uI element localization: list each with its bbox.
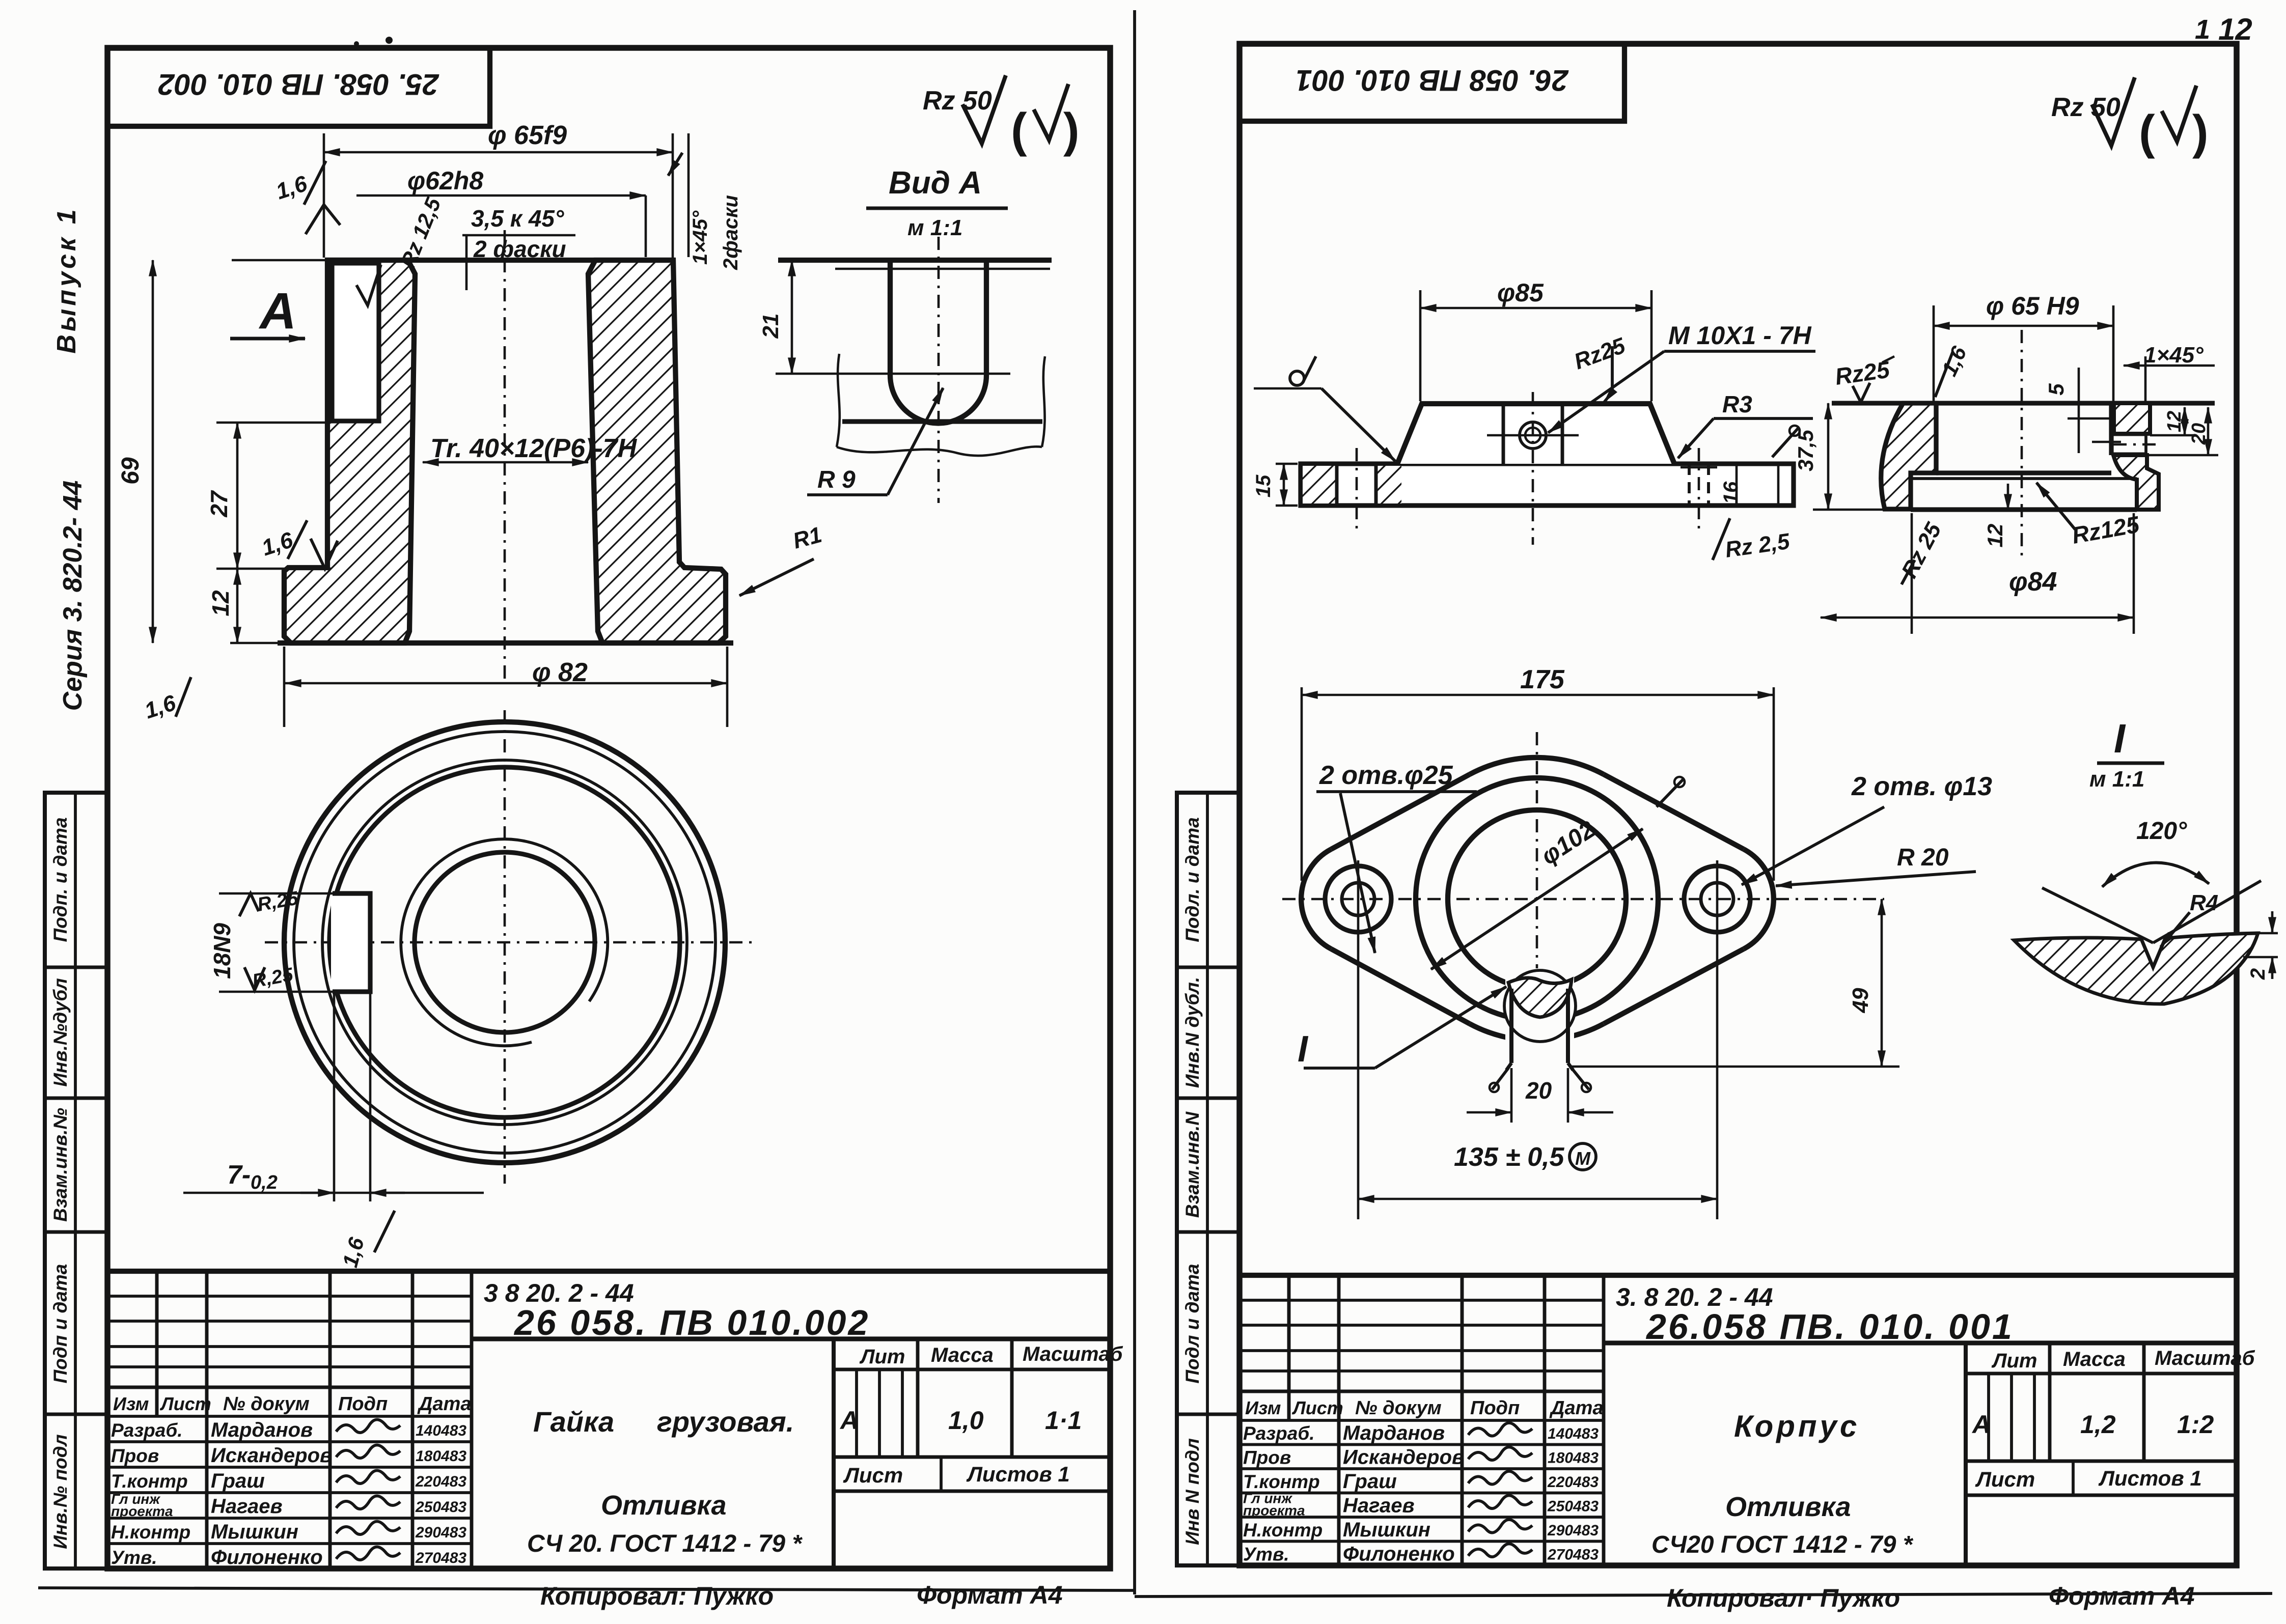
svg-text:): ) (2192, 105, 2209, 159)
svg-text:Масштаб: Масштаб (2155, 1347, 2255, 1369)
svg-text:№ докум: № докум (223, 1393, 310, 1415)
svg-text:12: 12 (207, 590, 234, 617)
svg-text:Лист: Лист (843, 1463, 903, 1487)
svg-text:Т.контр: Т.контр (1243, 1471, 1320, 1492)
svg-text:φ 65f9: φ 65f9 (488, 121, 567, 150)
svg-text:20: 20 (2188, 423, 2210, 445)
svg-text:R3: R3 (1722, 391, 1752, 417)
svg-text:А: А (1971, 1410, 1991, 1439)
svg-text:Подп: Подп (338, 1393, 388, 1415)
svg-text:Дата: Дата (1549, 1397, 1604, 1419)
svg-text:3,5 к 45°: 3,5 к 45° (471, 205, 564, 232)
svg-text:20: 20 (1525, 1077, 1552, 1104)
svg-text:А: А (258, 283, 296, 340)
svg-text:37,5: 37,5 (1794, 429, 1817, 471)
svg-text:Tr. 40×12(Р6)-7Н: Tr. 40×12(Р6)-7Н (430, 434, 638, 463)
svg-text:Марданов: Марданов (211, 1419, 313, 1441)
svg-text:0,2: 0,2 (251, 1172, 278, 1193)
svg-text:21: 21 (758, 314, 783, 339)
svg-text:А: А (839, 1406, 859, 1435)
svg-text:φ 65 Н9: φ 65 Н9 (1986, 292, 2079, 320)
svg-text:Подп и дата: Подп и дата (50, 1264, 71, 1384)
svg-text:φ85: φ85 (1497, 278, 1544, 307)
svg-text:Подп. и дата: Подп. и дата (50, 817, 71, 942)
svg-text:26 058. ПВ 010.002: 26 058. ПВ 010.002 (513, 1303, 870, 1342)
svg-text:270483: 270483 (1547, 1547, 1599, 1563)
svg-text:Граш: Граш (211, 1470, 265, 1492)
svg-text:26.058 ПВ. 010. 001: 26.058 ПВ. 010. 001 (1645, 1307, 2014, 1347)
svg-text:Корпус: Корпус (1734, 1409, 1860, 1443)
svg-text:1×45°: 1×45° (689, 210, 711, 265)
svg-text:Филоненко: Филоненко (211, 1546, 323, 1569)
svg-text:Пров: Пров (111, 1445, 159, 1466)
svg-text:180483: 180483 (416, 1448, 466, 1465)
svg-text:Н.контр: Н.контр (111, 1522, 190, 1543)
svg-text:140483: 140483 (416, 1422, 466, 1439)
svg-text:Пров: Пров (1243, 1447, 1291, 1468)
svg-text:2 отв.φ25: 2 отв.φ25 (1319, 761, 1453, 790)
svg-text:Листов 1: Листов 1 (2098, 1466, 2202, 1490)
svg-text:Н.контр: Н.контр (1243, 1520, 1323, 1541)
svg-text:φ84: φ84 (2009, 567, 2057, 597)
svg-text:R 20: R 20 (1897, 844, 1949, 871)
svg-text:Лист: Лист (1291, 1397, 1343, 1418)
svg-text:Копировал: Пужко: Копировал: Пужко (540, 1582, 774, 1610)
svg-text:I: I (2114, 716, 2126, 761)
svg-text:Лит: Лит (859, 1346, 905, 1368)
svg-text:Разраб.: Разраб. (1243, 1423, 1315, 1444)
svg-text:2фаски: 2фаски (720, 195, 742, 270)
svg-text:270483: 270483 (415, 1550, 466, 1566)
svg-text:26. 058 ПВ 010. 001: 26. 058 ПВ 010. 001 (1296, 64, 1568, 97)
svg-text:120°: 120° (2136, 818, 2187, 845)
svg-text:2 отв. φ13: 2 отв. φ13 (1851, 772, 1992, 801)
svg-text:Утв.: Утв. (1243, 1544, 1289, 1565)
svg-text:Искандеров: Искандеров (211, 1444, 332, 1467)
svg-text:Взам.инв.N: Взам.инв.N (1182, 1111, 1203, 1218)
svg-text:27: 27 (206, 490, 232, 518)
svg-text:Мышкин: Мышкин (211, 1521, 298, 1543)
svg-text:Масштаб: Масштаб (1023, 1343, 1123, 1365)
svg-text:Масса: Масса (931, 1344, 994, 1366)
svg-text:φ62h8: φ62h8 (407, 166, 483, 195)
svg-text:15: 15 (1252, 474, 1275, 497)
svg-text:290483: 290483 (1547, 1522, 1599, 1539)
svg-text:Нагаев: Нагаев (211, 1495, 283, 1518)
svg-text:12: 12 (2164, 411, 2185, 432)
svg-text:69: 69 (117, 457, 144, 485)
svg-text:Взам.инв.№: Взам.инв.№ (50, 1108, 71, 1222)
svg-text:№ докум: № докум (1355, 1397, 1442, 1419)
svg-text:290483: 290483 (415, 1524, 466, 1541)
svg-text:I: I (1298, 1029, 1309, 1070)
svg-text:1,0: 1,0 (948, 1406, 984, 1435)
svg-text:25. 058. ПВ 010. 002: 25. 058. ПВ 010. 002 (158, 68, 439, 101)
svg-text:Нагаев: Нагаев (1343, 1495, 1415, 1517)
svg-text:Изм: Изм (1245, 1397, 1281, 1418)
svg-text:Инв.№ подл: Инв.№ подл (50, 1434, 71, 1549)
svg-text:(: ( (2139, 105, 2155, 159)
svg-text:2: 2 (2247, 968, 2269, 980)
svg-text:2 фаски: 2 фаски (473, 236, 566, 262)
svg-text:СЧ 20. ГОСТ 1412 - 79 *: СЧ 20. ГОСТ 1412 - 79 * (527, 1530, 803, 1557)
svg-text:Листов 1: Листов 1 (966, 1462, 1070, 1486)
svg-text:м 1:1: м 1:1 (907, 215, 962, 240)
svg-text:Граш: Граш (1343, 1470, 1397, 1493)
svg-text:12: 12 (2218, 12, 2252, 46)
svg-text:Мышкин: Мышкин (1343, 1519, 1430, 1541)
svg-text:): ) (1063, 103, 1080, 157)
svg-text:(: ( (1011, 103, 1027, 157)
svg-text:Подп: Подп (1470, 1397, 1520, 1419)
svg-text:Филоненко: Филоненко (1343, 1543, 1455, 1565)
svg-text:18N9: 18N9 (209, 923, 235, 979)
svg-text:Марданов: Марданов (1343, 1422, 1445, 1444)
svg-text:Т.контр: Т.контр (111, 1471, 188, 1492)
svg-text:Вид А: Вид А (889, 165, 982, 201)
svg-text:R4: R4 (2190, 890, 2218, 915)
svg-text:Лист: Лист (1975, 1467, 2035, 1491)
svg-text:140483: 140483 (1548, 1425, 1599, 1442)
svg-text:12: 12 (1983, 524, 2007, 548)
svg-text:М 10X1 - 7Н: М 10X1 - 7Н (1668, 321, 1812, 350)
svg-text:175: 175 (1520, 665, 1565, 694)
svg-text:Отливка: Отливка (601, 1490, 727, 1521)
svg-text:7-: 7- (227, 1160, 251, 1190)
svg-text:Разраб.: Разраб. (111, 1420, 183, 1441)
svg-text:м 1:1: м 1:1 (2089, 767, 2144, 792)
svg-text:Подл. и дата: Подл. и дата (1182, 817, 1203, 942)
svg-text:Rz 50: Rz 50 (923, 86, 992, 116)
svg-text:Инв.№дубл: Инв.№дубл (50, 978, 71, 1086)
svg-text:Изм: Изм (113, 1393, 149, 1414)
svg-text:Подл и дата: Подл и дата (1182, 1264, 1203, 1383)
svg-text:Формат А4: Формат А4 (2049, 1582, 2195, 1610)
svg-text:Серия 3. 820.2- 44: Серия 3. 820.2- 44 (58, 481, 88, 711)
svg-text:Утв.: Утв. (111, 1547, 157, 1568)
svg-text:180483: 180483 (1548, 1450, 1599, 1467)
svg-text:Выпуск 1: Выпуск 1 (52, 206, 81, 353)
svg-text:грузовая.: грузовая. (657, 1406, 794, 1438)
svg-text:Копировал· Пужко: Копировал· Пужко (1667, 1584, 1900, 1612)
svg-text:49: 49 (1848, 988, 1873, 1013)
svg-text:Инв N подл: Инв N подл (1182, 1438, 1203, 1545)
svg-text:Rz 50: Rz 50 (2051, 93, 2120, 122)
svg-text:135 ± 0,5: 135 ± 0,5 (1454, 1142, 1565, 1172)
svg-text:5: 5 (2044, 383, 2068, 396)
svg-text:Формат А4: Формат А4 (917, 1581, 1063, 1609)
svg-text:220483: 220483 (1547, 1474, 1599, 1491)
svg-text:1:2: 1:2 (2177, 1410, 2214, 1439)
svg-text:250483: 250483 (415, 1499, 466, 1516)
svg-text:СЧ20 ГОСТ 1412 - 79 *: СЧ20 ГОСТ 1412 - 79 * (1651, 1531, 1914, 1558)
svg-text:16: 16 (1720, 481, 1742, 504)
svg-text:1·1: 1·1 (1045, 1406, 1082, 1435)
svg-text:Искандеров: Искандеров (1343, 1446, 1464, 1469)
svg-text:Гайка: Гайка (533, 1406, 614, 1438)
svg-text:1,2: 1,2 (2080, 1410, 2116, 1439)
svg-text:Лист: Лист (159, 1393, 211, 1414)
svg-text:220483: 220483 (415, 1473, 466, 1490)
svg-text:М: М (1575, 1148, 1591, 1169)
svg-text:1×45°: 1×45° (2144, 343, 2204, 368)
svg-text:Отливка: Отливка (1725, 1492, 1851, 1522)
svg-text:Лит: Лит (1991, 1350, 2037, 1372)
svg-text:Масса: Масса (2063, 1348, 2126, 1370)
svg-text:250483: 250483 (1547, 1498, 1599, 1515)
svg-text:Дата: Дата (417, 1393, 472, 1415)
svg-text:R 9: R 9 (817, 466, 856, 493)
svg-text:1: 1 (2195, 14, 2210, 45)
svg-text:Инв.N дубл.: Инв.N дубл. (1182, 977, 1203, 1088)
